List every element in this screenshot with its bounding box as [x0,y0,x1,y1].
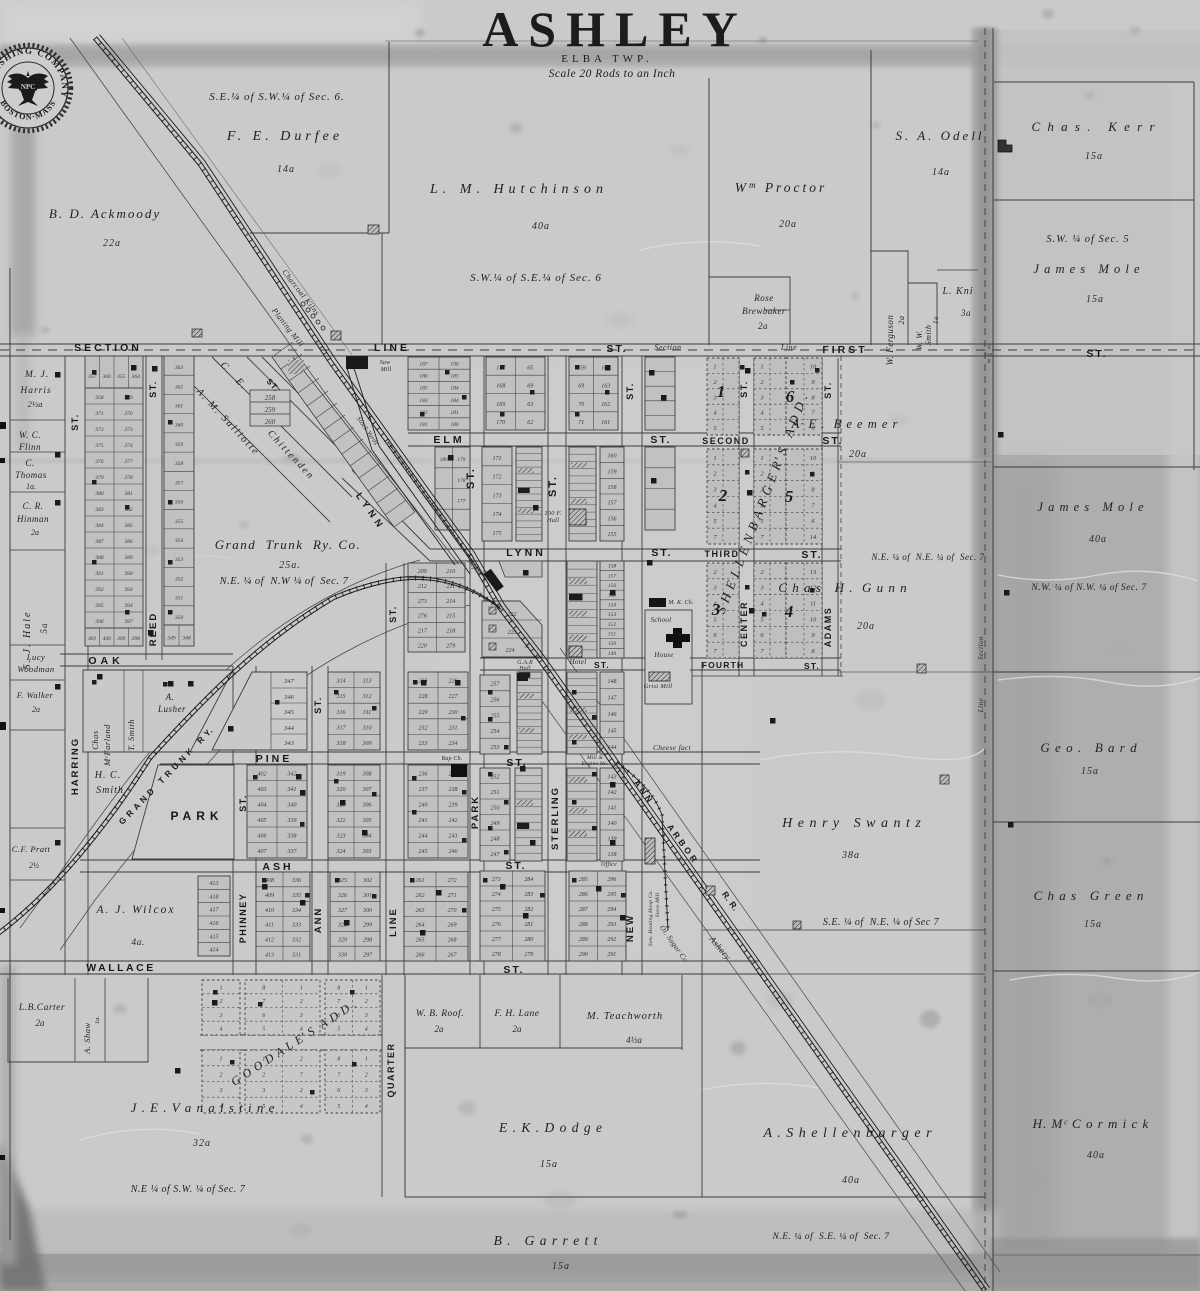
svg-text:241: 241 [419,817,428,824]
svg-text:358: 358 [94,395,104,401]
svg-text:156: 156 [608,516,617,522]
svg-text:392: 392 [94,587,104,593]
svg-text:5: 5 [337,1027,340,1033]
svg-text:389: 389 [123,555,133,561]
svg-text:238: 238 [449,787,458,793]
svg-text:L. M. Hutchinson: L. M. Hutchinson [429,182,608,197]
svg-text:279: 279 [524,952,533,958]
svg-text:School: School [651,616,672,624]
svg-text:162: 162 [601,402,610,408]
svg-text:310: 310 [362,725,372,731]
svg-text:Thomas: Thomas [15,470,47,480]
svg-text:14a: 14a [277,164,295,175]
svg-text:273: 273 [418,599,427,605]
svg-text:15a: 15a [1081,766,1099,777]
svg-text:LINE: LINE [374,342,410,354]
svg-text:STERLING: STERLING [550,786,561,850]
svg-text:373: 373 [123,427,133,433]
svg-text:2: 2 [220,1073,223,1079]
svg-text:A. Shaw: A. Shaw [82,1022,92,1054]
svg-text:383: 383 [94,507,104,513]
svg-text:412: 412 [265,936,274,943]
svg-text:312: 312 [362,694,372,700]
svg-text:259: 259 [265,406,276,414]
svg-text:ST.: ST. [503,964,524,976]
svg-text:330: 330 [337,952,347,958]
svg-text:186: 186 [419,373,428,379]
svg-text:158: 158 [608,564,617,570]
svg-text:184: 184 [450,397,459,404]
svg-text:180: 180 [440,457,449,463]
svg-text:C h a s H . G u n n: C h a s H . G u n n [778,580,907,595]
svg-text:ELM: ELM [433,434,464,446]
svg-text:228: 228 [419,694,428,700]
svg-text:334: 334 [291,907,301,914]
svg-text:291: 291 [607,952,616,958]
svg-text:PARK: PARK [170,809,223,823]
svg-text:374: 374 [123,442,133,449]
svg-text:260: 260 [265,418,276,426]
svg-text:W. B. Roof.: W. B. Roof. [416,1008,464,1019]
svg-text:14a: 14a [932,167,950,178]
svg-text:FIRST: FIRST [822,344,867,356]
svg-text:284: 284 [524,876,533,883]
svg-text:Saw: Saw [380,360,391,366]
svg-text:ST.: ST. [804,661,820,671]
svg-text:407: 407 [258,848,268,855]
svg-text:308: 308 [362,772,372,778]
svg-text:Stove Mill: Stove Mill [655,893,661,918]
svg-text:ST.: ST. [822,435,843,447]
svg-text:404: 404 [258,802,267,809]
svg-text:Brewbaker: Brewbaker [742,306,786,316]
svg-text:65: 65 [527,365,533,371]
svg-text:231: 231 [449,725,458,731]
svg-text:ST.: ST. [739,380,749,398]
svg-text:361: 361 [174,404,184,410]
svg-text:355: 355 [116,374,126,380]
svg-text:306: 306 [362,803,372,809]
svg-text:ST.: ST. [238,794,248,812]
svg-text:15a: 15a [552,1261,570,1272]
svg-text:210: 210 [446,569,455,575]
svg-text:249: 249 [491,820,500,827]
svg-text:ANN: ANN [313,907,324,934]
svg-text:3a: 3a [960,308,971,318]
svg-text:A . S h e l l e n b a r g e r: A . S h e l l e n b a r g e r [762,1126,932,1141]
svg-text:333: 333 [291,923,301,929]
svg-text:LYNN: LYNN [506,547,546,559]
svg-text:2½a: 2½a [28,399,43,409]
svg-text:1: 1 [713,455,716,462]
svg-text:Wm Proctor: Wm Proctor [735,180,828,195]
svg-text:215: 215 [446,614,455,620]
svg-text:NEW: NEW [625,914,636,942]
svg-text:149: 149 [608,650,617,657]
svg-text:402: 402 [258,771,267,778]
svg-text:15a: 15a [1084,919,1102,930]
svg-text:315: 315 [336,694,346,700]
svg-text:157: 157 [608,573,617,579]
svg-text:40a: 40a [1087,1150,1105,1161]
svg-text:242: 242 [449,817,458,824]
svg-text:A.: A. [165,692,175,702]
svg-text:335: 335 [291,893,301,899]
svg-text:2: 2 [718,486,728,505]
svg-text:Rose: Rose [753,293,774,303]
svg-text:ST.: ST. [70,413,80,431]
svg-text:406: 406 [258,833,267,840]
svg-text:261: 261 [416,878,425,884]
svg-text:286: 286 [579,892,588,898]
svg-text:3: 3 [299,1013,303,1019]
svg-text:Cheese fact: Cheese fact [653,743,692,752]
svg-text:MᶜFarland: MᶜFarland [102,724,112,767]
svg-text:3: 3 [364,1013,368,1019]
svg-text:6: 6 [262,1013,265,1019]
svg-text:CENTER: CENTER [739,601,749,647]
svg-text:Office: Office [601,861,617,868]
svg-text:275: 275 [492,907,501,913]
svg-text:1: 1 [717,382,726,401]
svg-text:340: 340 [287,802,297,809]
svg-text:243: 243 [449,833,458,840]
svg-text:240: 240 [419,802,428,809]
svg-text:227: 227 [449,694,459,700]
svg-text:HARRING: HARRING [70,737,81,795]
svg-text:Smith: Smith [924,325,933,346]
svg-text:276: 276 [492,922,501,928]
svg-text:256: 256 [491,698,500,704]
svg-text:250: 250 [491,806,500,812]
svg-text:362: 362 [174,384,184,390]
svg-text:380: 380 [94,491,104,497]
svg-text:2a: 2a [758,321,768,331]
svg-text:Hotel: Hotel [568,658,586,666]
svg-text:364: 364 [131,373,141,380]
svg-text:329: 329 [337,937,347,943]
svg-text:282: 282 [524,907,533,913]
svg-text:ST.: ST. [650,434,671,446]
svg-text:397: 397 [123,619,133,625]
svg-text:268: 268 [448,937,457,943]
svg-text:169: 169 [496,402,505,408]
svg-text:357: 357 [174,480,184,486]
svg-text:1: 1 [220,1057,223,1063]
svg-text:233: 233 [419,741,428,747]
svg-text:158: 158 [608,485,617,491]
svg-text:413: 413 [265,951,274,958]
svg-text:327: 327 [337,908,348,914]
svg-text:40a: 40a [532,221,550,232]
svg-text:J a m e s M o l e: J a m e s M o l e [1037,500,1144,514]
svg-text:297: 297 [363,952,373,958]
svg-text:J a m e s M o l e: J a m e s M o l e [1033,262,1140,276]
svg-text:403: 403 [258,786,267,793]
svg-text:358: 358 [174,461,184,467]
svg-text:1: 1 [220,985,223,991]
svg-text:Line: Line [977,698,985,713]
svg-text:40a: 40a [1089,534,1107,545]
svg-text:396: 396 [94,619,104,625]
svg-text:2a: 2a [32,705,40,714]
svg-text:B. D. Ackmoody: B. D. Ackmoody [49,206,161,221]
svg-text:2a: 2a [435,1024,445,1034]
svg-text:229: 229 [419,710,428,716]
svg-text:283: 283 [524,892,533,898]
svg-text:S.W. ¼ of Sec. 5: S.W. ¼ of Sec. 5 [1046,234,1129,245]
svg-text:W. Ferguson: W. Ferguson [885,315,895,366]
svg-text:177: 177 [457,499,466,505]
svg-text:ST.: ST. [801,549,822,561]
svg-text:1: 1 [760,364,763,371]
svg-text:416: 416 [210,920,219,927]
svg-text:371: 371 [94,411,104,417]
svg-text:372: 372 [94,427,104,433]
svg-text:C.F. Pratt: C.F. Pratt [12,844,51,854]
svg-text:FOURTH: FOURTH [702,660,745,670]
svg-text:F. Walker: F. Walker [16,690,54,700]
svg-text:175: 175 [493,531,502,537]
svg-text:232: 232 [419,725,428,731]
svg-text:170: 170 [496,420,505,426]
svg-text:W. W.: W. W. [915,330,924,350]
svg-text:C. R.: C. R. [23,501,44,511]
svg-text:323: 323 [336,834,346,840]
svg-text:322: 322 [336,818,346,824]
svg-text:N.E. ¼ of N.W ¼ of Sec. 7: N.E. ¼ of N.W ¼ of Sec. 7 [219,576,349,587]
svg-text:279: 279 [446,643,455,649]
svg-text:1: 1 [300,985,303,991]
svg-text:M. Teachworth: M. Teachworth [586,1011,663,1022]
svg-text:1: 1 [365,1057,368,1063]
svg-text:Lusher: Lusher [157,704,186,714]
svg-text:363: 363 [174,365,184,371]
svg-text:273: 273 [492,877,501,883]
svg-text:394: 394 [123,602,133,609]
svg-text:359: 359 [174,442,184,448]
svg-text:324: 324 [336,848,346,855]
svg-text:395: 395 [94,603,104,609]
svg-text:40a: 40a [842,1175,860,1186]
svg-text:H. Mᶜ C o r m i c k: H. Mᶜ C o r m i c k [1032,1116,1150,1131]
svg-text:276: 276 [418,614,427,620]
svg-text:287: 287 [579,907,589,913]
svg-text:152: 152 [608,622,617,628]
svg-text:PINE: PINE [256,753,293,765]
svg-text:Flinn: Flinn [18,442,41,452]
svg-text:25a.: 25a. [279,560,301,571]
svg-text:LINE: LINE [388,907,399,937]
svg-text:15a: 15a [1085,151,1103,162]
svg-text:376: 376 [94,459,104,465]
svg-text:378: 378 [123,475,133,481]
svg-text:M. J.: M. J. [24,370,49,380]
svg-text:N.E. ¼ of S.E. ¼ of Sec. 7: N.E. ¼ of S.E. ¼ of Sec. 7 [772,1231,891,1242]
svg-text:148: 148 [608,678,617,685]
svg-text:141: 141 [608,805,617,812]
svg-text:245: 245 [419,848,428,855]
svg-text:313: 313 [362,679,372,685]
svg-text:269: 269 [448,923,457,929]
svg-text:399: 399 [116,636,126,642]
svg-text:ST.: ST. [388,605,398,623]
svg-text:309: 309 [362,741,372,747]
svg-text:384: 384 [94,522,104,529]
svg-text:C h a s G r e e n: C h a s G r e e n [1034,888,1145,903]
svg-text:ELBA TWP.: ELBA TWP. [561,53,652,65]
svg-text:303: 303 [362,849,372,855]
svg-text:289: 289 [579,937,588,943]
svg-text:183: 183 [419,398,428,404]
svg-text:159: 159 [608,469,617,475]
svg-text:3: 3 [219,1013,223,1019]
svg-text:236: 236 [419,772,428,778]
svg-text:S: S [988,345,991,351]
svg-text:N.E ¼ of S.W. ¼ of Sec. 7: N.E ¼ of S.W. ¼ of Sec. 7 [130,1184,246,1195]
svg-text:234: 234 [449,740,458,747]
svg-text:1: 1 [713,364,716,371]
svg-text:ST.: ST. [505,860,526,872]
svg-text:SECOND: SECOND [702,436,750,446]
svg-text:181: 181 [419,422,428,428]
svg-text:8: 8 [337,985,340,991]
svg-text:3: 3 [219,1088,223,1094]
svg-text:2a: 2a [897,316,906,325]
svg-text:154: 154 [608,601,617,608]
svg-text:300: 300 [362,908,372,914]
svg-text:8: 8 [337,1057,340,1063]
svg-text:11: 11 [810,600,816,607]
svg-text:T. Smith: T. Smith [126,719,136,751]
svg-text:316: 316 [336,710,346,716]
svg-text:N.E. ¼ of N.E. ¼ of Sec. 7: N.E. ¼ of N.E. ¼ of Sec. 7 [871,552,985,562]
svg-text:163: 163 [601,384,610,390]
svg-text:357: 357 [87,374,97,380]
svg-text:2: 2 [300,1057,303,1063]
svg-text:Hinman: Hinman [16,514,49,524]
svg-text:Engine Ho.: Engine Ho. [580,761,608,767]
svg-text:Bap Ch.: Bap Ch. [441,756,462,762]
svg-text:C h a s . K e r r: C h a s . K e r r [1031,119,1156,134]
svg-text:157: 157 [608,501,618,507]
svg-text:ST.: ST. [148,380,158,398]
svg-text:ST.: ST. [606,343,627,355]
svg-text:317: 317 [336,725,347,731]
svg-text:230: 230 [449,710,458,716]
svg-text:318: 318 [336,741,346,747]
svg-text:1: 1 [760,455,763,462]
svg-text:71: 71 [578,420,584,426]
svg-text:63: 63 [527,402,533,408]
svg-text:Mill: Mill [380,367,392,373]
svg-text:4: 4 [784,602,794,621]
svg-text:246: 246 [449,848,458,855]
svg-text:350: 350 [174,615,184,621]
svg-text:390: 390 [123,571,133,577]
svg-text:239: 239 [449,803,458,809]
svg-text:143: 143 [608,774,617,781]
svg-text:32a: 32a [192,1138,211,1149]
svg-text:386: 386 [123,539,133,545]
svg-text:349: 349 [166,634,176,641]
svg-text:ST.: ST. [313,696,323,714]
svg-text:M. K. Ch.: M. K. Ch. [667,600,693,606]
svg-text:ST.: ST. [506,757,527,769]
svg-text:69: 69 [578,384,584,390]
svg-text:400: 400 [103,635,112,642]
svg-text:220: 220 [418,643,427,649]
svg-text:267: 267 [448,952,458,958]
svg-text:311: 311 [362,710,372,716]
svg-text:H e n r y S w a n t z: H e n r y S w a n t z [781,816,922,831]
svg-text:Lucy: Lucy [26,652,46,662]
svg-text:69: 69 [527,384,533,390]
svg-text:4½a: 4½a [626,1035,642,1045]
svg-text:62: 62 [527,420,533,426]
svg-text:3: 3 [261,1088,265,1094]
svg-text:4: 4 [365,1026,368,1033]
svg-text:218: 218 [446,628,455,634]
svg-text:2: 2 [300,1088,303,1094]
svg-text:180: 180 [450,422,459,428]
svg-text:146: 146 [608,711,617,718]
svg-text:142: 142 [608,789,617,796]
svg-text:266: 266 [416,952,425,958]
svg-text:307: 307 [362,787,373,793]
svg-text:253: 253 [491,745,500,751]
svg-text:F. H. Lane: F. H. Lane [494,1009,540,1019]
svg-text:4a.: 4a. [131,938,144,948]
svg-text:305: 305 [362,818,372,824]
svg-text:1: 1 [365,985,368,991]
svg-text:302: 302 [362,878,372,884]
svg-text:G e o . B a r d: G e o . B a r d [1040,740,1137,755]
svg-text:295: 295 [607,892,616,898]
svg-text:212: 212 [418,584,427,590]
svg-text:L.B.Carter: L.B.Carter [18,1003,65,1013]
svg-text:301: 301 [362,893,372,899]
svg-text:Grist Mill: Grist Mill [644,683,673,690]
svg-text:320: 320 [336,787,346,793]
svg-text:314: 314 [336,678,346,685]
svg-text:254: 254 [491,728,500,735]
svg-text:ST.: ST. [823,381,833,399]
svg-text:354: 354 [174,537,184,544]
svg-text:292: 292 [607,937,616,943]
svg-text:341: 341 [287,786,297,793]
svg-text:345: 345 [283,709,295,716]
svg-text:415: 415 [210,933,219,940]
svg-text:272: 272 [448,878,457,884]
svg-text:347: 347 [283,678,295,685]
svg-text:5a: 5a [39,623,49,634]
svg-text:140: 140 [608,820,617,827]
svg-text:A· E . B e e m e r: A· E . B e e m e r [791,417,899,431]
svg-text:161: 161 [601,420,610,426]
svg-text:417: 417 [210,907,220,914]
svg-text:190: 190 [450,361,459,367]
svg-text:Harris: Harris [19,386,51,396]
svg-text:288: 288 [579,922,588,928]
svg-text:5: 5 [337,1104,340,1110]
svg-text:184: 184 [450,385,459,392]
svg-text:270: 270 [448,908,457,914]
svg-text:185: 185 [419,386,428,392]
svg-text:WALLACE: WALLACE [86,962,155,974]
svg-text:5: 5 [262,1027,265,1033]
svg-text:344: 344 [283,725,295,732]
